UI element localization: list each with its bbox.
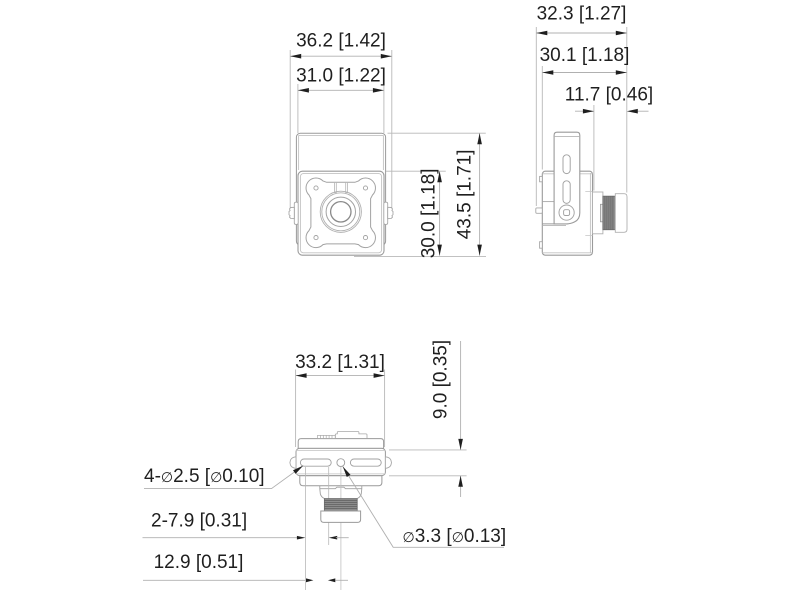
svg-text:36.2 [1.42]: 36.2 [1.42] [296,31,386,52]
svg-text:30.0 [1.18]: 30.0 [1.18] [419,169,440,259]
svg-text:30.1 [1.18]: 30.1 [1.18] [540,45,630,66]
svg-text:∅3.3 [∅0.13]: ∅3.3 [∅0.13] [403,526,507,547]
svg-text:43.5 [1.71]: 43.5 [1.71] [455,150,476,240]
svg-text:11.7 [0.46]: 11.7 [0.46] [565,85,653,106]
svg-text:32.3 [1.27]: 32.3 [1.27] [537,4,627,25]
svg-text:2-7.9 [0.31]: 2-7.9 [0.31] [151,511,247,532]
svg-text:12.9 [0.51]: 12.9 [0.51] [154,552,244,573]
svg-text:9.0 [0.35]: 9.0 [0.35] [431,340,452,419]
svg-text:31.0 [1.22]: 31.0 [1.22] [296,66,386,87]
svg-text:4-∅2.5 [∅0.10]: 4-∅2.5 [∅0.10] [144,466,265,487]
svg-text:33.2 [1.31]: 33.2 [1.31] [295,352,385,373]
